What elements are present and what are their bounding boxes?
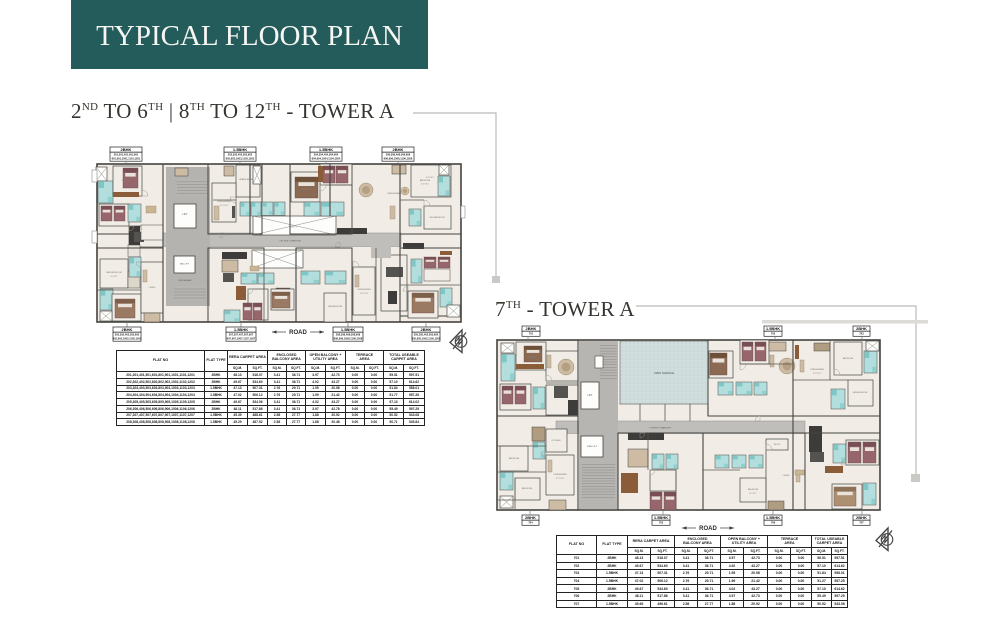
svg-text:ROAD: ROAD (289, 330, 307, 336)
svg-text:10'7"X12'4": 10'7"X12'4" (220, 205, 229, 207)
svg-text:2ND BEDROOM: 2ND BEDROOM (328, 306, 343, 308)
svg-text:2BHK: 2BHK (421, 327, 432, 332)
svg-text:BEDROOM: BEDROOM (522, 488, 533, 490)
svg-text:MID LIFT: MID LIFT (180, 264, 190, 266)
svg-text:806,906,1006,1106,1206: 806,906,1006,1106,1206 (384, 156, 413, 160)
svg-text:GEN BEDROOM: GEN BEDROOM (853, 392, 868, 394)
svg-text:204,304,404,504,604: 204,304,404,504,604 (314, 153, 339, 157)
svg-text:704: 704 (528, 521, 533, 525)
svg-text:203,303,403,503,603: 203,303,403,503,603 (228, 153, 253, 157)
svg-text:10'0"X11'6": 10'0"X11'6" (122, 180, 131, 182)
svg-text:10'0"X11'0": 10'0"X11'0" (717, 363, 726, 365)
svg-text:BEDROOM: BEDROOM (420, 180, 431, 182)
svg-text:LIVING: LIVING (783, 475, 790, 477)
svg-text:1ST FLR CORRIDOR: 1ST FLR CORRIDOR (279, 241, 301, 243)
svg-text:10'0"X9'7": 10'0"X9'7" (749, 493, 757, 495)
svg-text:10'0"X11'0": 10'0"X11'0" (421, 184, 430, 186)
svg-text:LIVING/DINING: LIVING/DINING (387, 193, 402, 195)
svg-text:1.5BHK: 1.5BHK (319, 147, 333, 152)
svg-text:2BHK: 2BHK (526, 326, 537, 331)
svg-text:WOOD: WOOD (774, 444, 781, 446)
svg-text:2ND BEDROOM: 2ND BEDROOM (430, 217, 445, 219)
svg-text:2BHK: 2BHK (393, 147, 404, 152)
svg-text:FIRE PASSAGE: FIRE PASSAGE (178, 279, 192, 282)
svg-text:202,302,402,502,602: 202,302,402,502,602 (115, 333, 140, 337)
svg-text:LIVING/DINING: LIVING/DINING (357, 289, 371, 291)
svg-text:LIFT: LIFT (588, 394, 593, 397)
svg-text:BEDROOM: BEDROOM (748, 489, 759, 491)
svg-text:BED BEDROOM: BED BEDROOM (106, 272, 121, 274)
svg-text:804,904,1004,1104,1204: 804,904,1004,1104,1204 (312, 156, 341, 160)
svg-text:803,903,1003,1103,1203: 803,903,1003,1103,1203 (226, 156, 255, 160)
svg-text:2BHK: 2BHK (856, 326, 867, 331)
svg-text:701: 701 (529, 332, 534, 336)
svg-text:807,907,1007,1107,1207: 807,907,1007,1107,1207 (227, 336, 256, 340)
svg-text:BEDROOM: BEDROOM (509, 458, 520, 460)
svg-text:1.5BHK: 1.5BHK (766, 326, 780, 331)
svg-text:FIRE LIFT: FIRE LIFT (587, 446, 598, 448)
svg-text:707: 707 (859, 521, 864, 525)
svg-text:10'7"X13'4": 10'7"X13'4" (556, 478, 565, 480)
svg-text:205,305,405,505,605: 205,305,405,505,605 (414, 333, 439, 337)
svg-text:702: 702 (771, 332, 776, 336)
svg-text:805,905,1005,1105,1205: 805,905,1005,1105,1205 (412, 336, 441, 340)
svg-text:706: 706 (771, 521, 776, 525)
svg-text:2BHK: 2BHK (856, 515, 867, 520)
svg-text:BEDROOM: BEDROOM (843, 358, 854, 360)
svg-text:10'7"X13'4": 10'7"X13'4" (360, 293, 369, 295)
svg-text:801,901,1001,1101,1201: 801,901,1001,1101,1201 (112, 156, 141, 160)
svg-text:LIVING/DINING: LIVING/DINING (810, 369, 825, 371)
svg-text:10'0"X11'0": 10'0"X11'0" (302, 189, 311, 191)
svg-text:1.5BHK: 1.5BHK (233, 147, 247, 152)
svg-text:201,301,401,501,601: 201,301,401,501,601 (114, 153, 139, 157)
svg-text:LIVING: LIVING (149, 287, 156, 289)
svg-text:207,307,407,507,607: 207,307,407,507,607 (229, 333, 254, 337)
svg-text:10'7"X12'4": 10'7"X12'4" (813, 373, 822, 375)
svg-text:2BHK: 2BHK (122, 327, 133, 332)
svg-text:1.5BHK: 1.5BHK (234, 327, 248, 332)
svg-text:703: 703 (859, 332, 864, 336)
svg-text:LIVING/DINING: LIVING/DINING (217, 201, 232, 203)
svg-text:ROAD: ROAD (699, 526, 717, 532)
svg-text:10'0"X11'6": 10'0"X11'6" (426, 177, 435, 179)
svg-text:802,902,1002,1102,1202: 802,902,1002,1102,1202 (113, 336, 142, 340)
svg-text:208,308,408,508,608: 208,308,408,508,608 (336, 333, 361, 337)
svg-text:LIVING/DINING: LIVING/DINING (553, 474, 567, 476)
svg-text:DUCT: DUCT (291, 227, 298, 229)
svg-text:10'0"X11'6": 10'0"X11'6" (527, 357, 536, 359)
svg-text:1.5BHK: 1.5BHK (341, 327, 355, 332)
svg-text:OPEN TERRACE: OPEN TERRACE (654, 371, 675, 375)
svg-text:206,306,406,506,606: 206,306,406,506,606 (386, 153, 411, 157)
svg-text:10'0"X9'7": 10'0"X9'7" (110, 276, 118, 278)
svg-text:LIFT: LIFT (183, 213, 188, 216)
svg-text:2BHK: 2BHK (121, 147, 132, 152)
svg-text:1.5BHK: 1.5BHK (654, 515, 668, 520)
svg-text:808,908,1008,1108,1208: 808,908,1008,1108,1208 (334, 336, 363, 340)
svg-text:2BHK: 2BHK (525, 515, 536, 520)
svg-text:705: 705 (659, 521, 664, 525)
svg-text:7TH FLR CORRIDOR: 7TH FLR CORRIDOR (649, 428, 671, 430)
svg-text:KITCHEN: KITCHEN (552, 440, 561, 442)
svg-text:1.5BHK: 1.5BHK (766, 515, 780, 520)
